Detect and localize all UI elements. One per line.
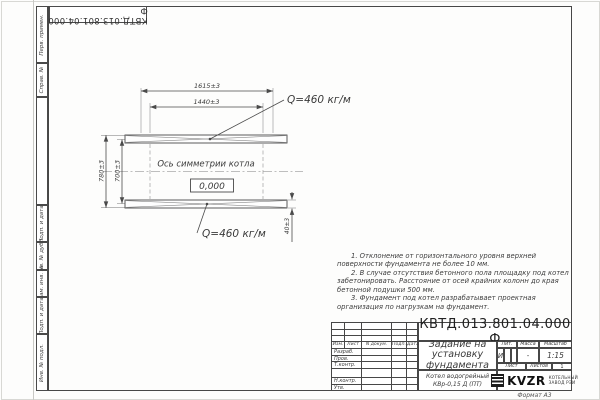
foundation-beam-top xyxy=(125,135,287,143)
note-3: 3. Фундамент под котел разрабатывает про… xyxy=(337,294,570,311)
product-line-2: КВр-0,15 Д (ПТ) xyxy=(433,381,482,389)
axis-label-text: Ось симметрии котла xyxy=(157,160,254,170)
divider xyxy=(361,323,362,390)
logo-caption: КОТЕЛЬНЫЙ ЗАВОД РЭИ xyxy=(549,376,578,386)
lit-label: Лит. xyxy=(497,341,517,348)
divider xyxy=(391,323,392,390)
col-podp: Подп. xyxy=(392,343,406,348)
kvzr-logo-icon xyxy=(491,374,504,387)
dim-inner-text: 1440±3 xyxy=(193,98,219,106)
scale-value: 1:15 xyxy=(539,348,572,363)
sheets-label: Листов xyxy=(526,363,552,370)
divider xyxy=(332,335,417,336)
lit-cell-2 xyxy=(504,348,511,363)
row-utv: Утв. xyxy=(334,386,345,391)
col-ndokum: N докум. xyxy=(362,343,391,348)
signature-table: Изм. Лист N докум. Подп. Дата Разраб. Пр… xyxy=(331,322,418,391)
mass-value: - xyxy=(517,348,539,363)
divider xyxy=(332,384,417,385)
logo-cell: KVZR КОТЕЛЬНЫЙ ЗАВОД РЭИ xyxy=(497,370,572,391)
elevation-text: 0,000 xyxy=(199,182,225,192)
company-logo: KVZR КОТЕЛЬНЫЙ ЗАВОД РЭИ xyxy=(491,374,578,388)
load-top-text: Q=460 кг/м xyxy=(287,94,351,106)
row-nkontr: Н.контр. xyxy=(334,379,356,384)
row-razrab: Разраб. xyxy=(334,350,354,355)
divider xyxy=(406,323,407,390)
sheet-label: Лист xyxy=(497,363,526,370)
product-line-1: Котел водогрейный xyxy=(426,373,489,381)
notes-block: 1. Отклонение от горизонтального уровня … xyxy=(337,252,570,311)
divider xyxy=(332,368,417,369)
logo-caption-line-2: ЗАВОД РЭИ xyxy=(549,381,576,386)
sheets-value: 1 xyxy=(552,363,572,370)
titleblock-product: Котел водогрейный КВр-0,15 Д (ПТ) xyxy=(418,370,497,391)
dim-left-inner-text: 700±3 xyxy=(114,160,122,182)
logo-text: KVZR xyxy=(507,374,546,388)
dim-outer-text: 1615±3 xyxy=(194,82,220,90)
dim-left-outer-text: 780±3 xyxy=(98,160,106,182)
col-izm: Изм. xyxy=(332,343,344,348)
titleblock-doc-title: Задание на установку фундамента xyxy=(418,341,497,370)
row-prov: Пров. xyxy=(334,357,349,362)
col-list: Лист xyxy=(345,343,361,348)
mass-label: Масса xyxy=(517,341,539,348)
lit-value: И xyxy=(497,348,504,363)
format-label: Формат А3 xyxy=(497,392,572,399)
dim-beam-text: 40±3 xyxy=(284,218,291,235)
divider xyxy=(332,329,417,330)
scale-label: Масштаб xyxy=(539,341,572,348)
note-1: 1. Отклонение от горизонтального уровня … xyxy=(337,252,570,269)
col-data: Дата xyxy=(407,343,417,348)
note-2: 2. В случае отсутствия бетонного пола пл… xyxy=(337,269,570,294)
row-tkontr: Т.контр. xyxy=(334,363,356,368)
load-bottom-text: Q=460 кг/м xyxy=(202,228,266,240)
